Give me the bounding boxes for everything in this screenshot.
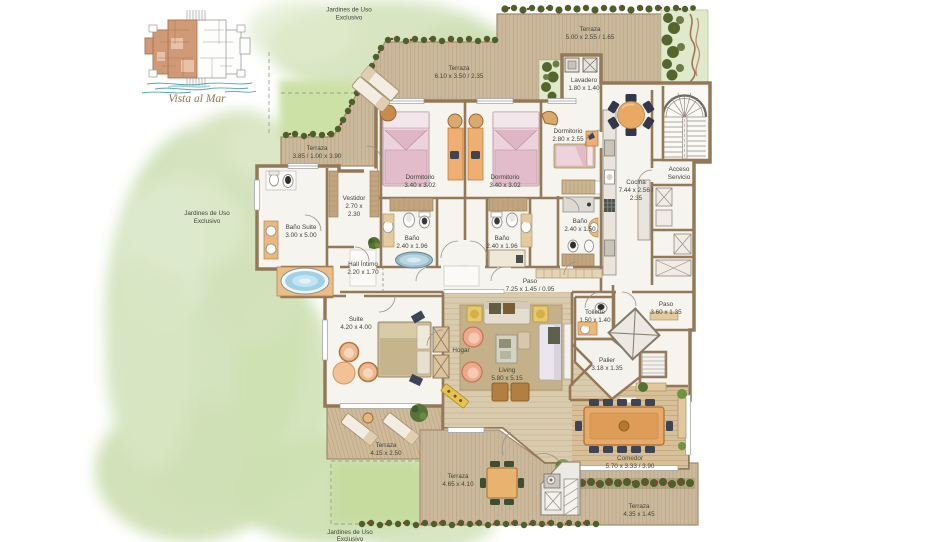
svg-text:2.40 x 1.50: 2.40 x 1.50 — [564, 226, 596, 233]
svg-text:Living: Living — [499, 367, 516, 374]
svg-text:Exclusivo: Exclusivo — [194, 218, 221, 225]
svg-text:3.60 x 1.35: 3.60 x 1.35 — [650, 309, 682, 316]
svg-text:Baño Suite: Baño Suite — [286, 224, 317, 231]
svg-text:Servicio: Servicio — [668, 174, 691, 181]
svg-text:6.10 x 3.50 / 2.35: 6.10 x 3.50 / 2.35 — [435, 73, 484, 80]
svg-text:Baño: Baño — [495, 235, 510, 242]
svg-text:Lavadero: Lavadero — [571, 77, 598, 84]
svg-text:2.30: 2.30 — [348, 211, 361, 218]
svg-text:Vista al Mar: Vista al Mar — [168, 93, 226, 105]
svg-text:7.25 x 1.45 / 0.95: 7.25 x 1.45 / 0.95 — [506, 286, 555, 293]
svg-text:Comedor: Comedor — [617, 455, 643, 462]
svg-text:1.80 x 1.40: 1.80 x 1.40 — [568, 85, 600, 92]
svg-text:Dormitorio: Dormitorio — [405, 174, 435, 181]
svg-text:2.80 x 2.55: 2.80 x 2.55 — [552, 136, 584, 143]
svg-text:3.40 x 3.02: 3.40 x 3.02 — [404, 182, 436, 189]
svg-text:Dormitorio: Dormitorio — [553, 128, 583, 135]
svg-text:7.44 x 2.56 /: 7.44 x 2.56 / — [619, 187, 654, 194]
svg-text:Terraza: Terraza — [629, 503, 650, 510]
svg-text:3.40 x 3.02: 3.40 x 3.02 — [489, 182, 521, 189]
svg-text:2.70 x: 2.70 x — [345, 203, 363, 210]
svg-text:Terraza: Terraza — [580, 26, 601, 33]
svg-text:Baño: Baño — [405, 235, 420, 242]
svg-text:Baño: Baño — [573, 218, 588, 225]
svg-text:Hogar: Hogar — [452, 347, 469, 354]
svg-text:4.65 x 4.10: 4.65 x 4.10 — [442, 481, 474, 488]
svg-text:Vestidor: Vestidor — [343, 195, 366, 202]
svg-text:2.40 x 1.96: 2.40 x 1.96 — [486, 243, 518, 250]
svg-text:Cocina: Cocina — [626, 179, 646, 186]
svg-text:Suite: Suite — [349, 316, 364, 323]
svg-text:3.00 x 5.00: 3.00 x 5.00 — [285, 232, 317, 239]
svg-text:Paso: Paso — [523, 278, 538, 285]
svg-text:Terraza: Terraza — [376, 442, 397, 449]
svg-text:4.35 x 1.45: 4.35 x 1.45 — [623, 511, 655, 518]
svg-text:Exclusivo: Exclusivo — [336, 15, 363, 22]
svg-text:2.35: 2.35 — [630, 195, 643, 202]
svg-text:5.80 x 5.15: 5.80 x 5.15 — [491, 375, 523, 382]
svg-text:4.20 x 4.00: 4.20 x 4.00 — [340, 324, 372, 331]
svg-text:Paso: Paso — [659, 301, 674, 308]
svg-text:1.50 x 1.40: 1.50 x 1.40 — [579, 317, 611, 324]
svg-text:Terraza: Terraza — [448, 473, 469, 480]
svg-text:5.00 x 2.55 / 1.65: 5.00 x 2.55 / 1.65 — [566, 34, 615, 41]
svg-text:2.40 x 1.96: 2.40 x 1.96 — [396, 243, 428, 250]
svg-text:Terraza: Terraza — [307, 145, 328, 152]
svg-text:Jardines de Uso: Jardines de Uso — [327, 529, 373, 536]
svg-text:Toilette: Toilette — [585, 309, 605, 316]
svg-text:2.20 x 1.70: 2.20 x 1.70 — [347, 269, 379, 276]
svg-text:Dormitorio: Dormitorio — [490, 174, 520, 181]
svg-text:Palier: Palier — [599, 357, 615, 364]
svg-text:3.85 / 1.00 x 3.90: 3.85 / 1.00 x 3.90 — [293, 153, 342, 160]
svg-text:Terraza: Terraza — [449, 65, 470, 72]
svg-text:Jardines de Uso: Jardines de Uso — [184, 210, 230, 217]
svg-text:Exclusivo: Exclusivo — [337, 536, 364, 542]
svg-text:Acceso: Acceso — [669, 166, 690, 173]
svg-text:5.70 x 3.33 / 3.90: 5.70 x 3.33 / 3.90 — [606, 463, 655, 470]
svg-text:4.15 x 2.50: 4.15 x 2.50 — [370, 450, 402, 457]
svg-text:3.18 x 1.35: 3.18 x 1.35 — [591, 365, 623, 372]
svg-text:Jardines de Uso: Jardines de Uso — [326, 7, 372, 14]
svg-text:Hall Íntimo: Hall Íntimo — [348, 259, 378, 268]
